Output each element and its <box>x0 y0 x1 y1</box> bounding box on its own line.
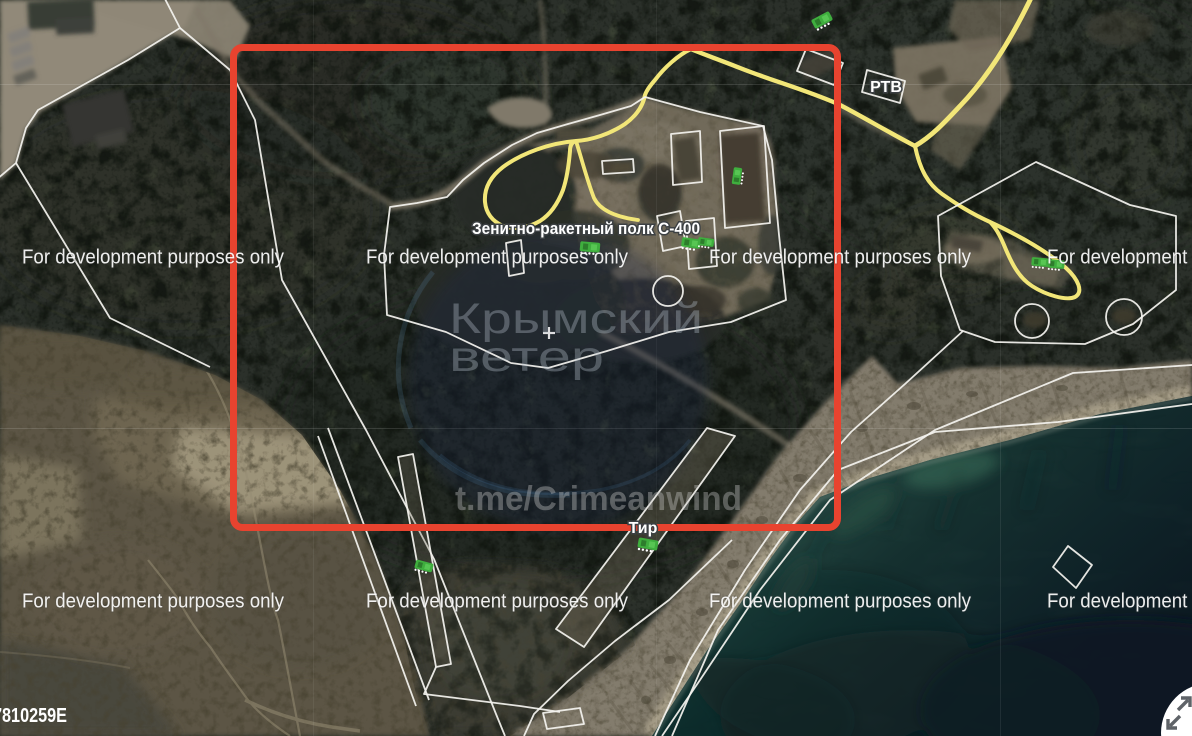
svg-text:РТВ: РТВ <box>870 79 902 96</box>
svg-text:For development purposes only: For development purposes only <box>366 591 628 613</box>
svg-text:Тир: Тир <box>629 520 658 537</box>
svg-text:For development purposes only: For development purposes only <box>709 591 971 613</box>
svg-text:For development purposes only: For development purposes only <box>709 247 971 269</box>
svg-text:ветер: ветер <box>449 333 604 381</box>
svg-text:For development purposes only: For development purposes only <box>1047 247 1192 269</box>
svg-text:Зенитно-ракетный полк С-400: Зенитно-ракетный полк С-400 <box>472 219 700 238</box>
svg-text:For development purposes only: For development purposes only <box>22 591 284 613</box>
svg-text:For development purposes only: For development purposes only <box>366 247 628 269</box>
svg-text:For development purposes only: For development purposes only <box>22 247 284 269</box>
svg-text:For development purposes only: For development purposes only <box>1047 591 1192 613</box>
svg-text:7810259E: 7810259E <box>0 705 67 727</box>
svg-text:t.me/Crimeanwind: t.me/Crimeanwind <box>455 480 742 518</box>
